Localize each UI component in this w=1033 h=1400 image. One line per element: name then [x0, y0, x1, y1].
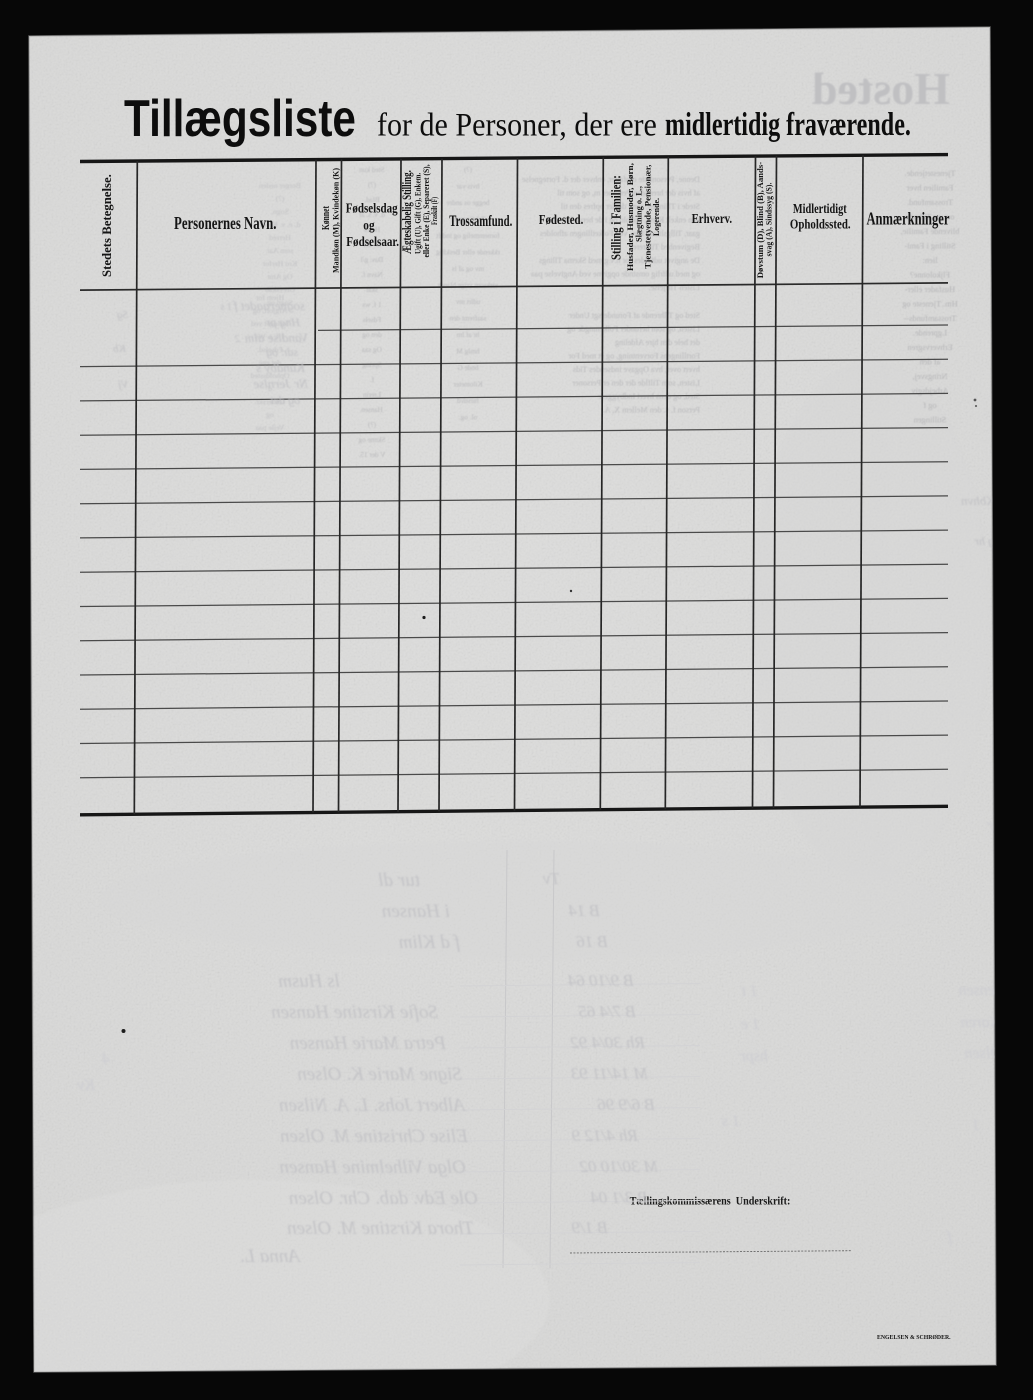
- svg-text:Anmærkninger: Anmærkninger: [867, 210, 950, 230]
- svg-text:Tillægsliste: Tillægsliste: [124, 90, 356, 148]
- svg-text:B 7/4 65: B 7/4 65: [578, 1002, 636, 1021]
- svg-text:Trossamfund.: Trossamfund.: [449, 212, 512, 230]
- svg-text:Dav. g/l: Dav. g/l: [361, 256, 384, 264]
- svg-text:Stilling i Fami-: Stilling i Fami-: [904, 242, 955, 251]
- svg-text:Trossamfund.: Trossamfund.: [907, 198, 953, 207]
- svg-text:Fljkolonne?: Fljkolonne?: [910, 271, 950, 280]
- svg-text:Sg: Sg: [117, 309, 129, 321]
- svg-text:Nringsvej,: Nringsvej,: [912, 372, 947, 381]
- svg-text:Erhverv.: Erhverv.: [692, 211, 733, 226]
- svg-text:M 14/11 93: M 14/11 93: [571, 1064, 649, 1083]
- svg-text:Sknne og: Sknne og: [358, 436, 385, 444]
- svg-text:(?): (?): [367, 181, 376, 189]
- svg-text:Opholdssted.: Opholdssted.: [790, 216, 851, 231]
- svg-text:Erhvervsgren: Erhvervsgren: [907, 343, 953, 352]
- svg-text:Petra Marie Hansen: Petra Marie Hansen: [290, 1033, 447, 1054]
- svg-text:Olga Vilhelmine Hansen: Olga Vilhelmine Hansen: [280, 1157, 466, 1178]
- svg-text:B 6/9 96: B 6/9 96: [597, 1095, 655, 1114]
- svg-text:Tjenestetjende.: Tjenestetjende.: [905, 169, 956, 178]
- svg-text:Familien hver: Familien hver: [906, 184, 953, 193]
- svg-text:ol. og.: ol. og.: [459, 414, 477, 422]
- svg-text:og: og: [266, 410, 274, 419]
- svg-text:Kv: Kv: [76, 1077, 96, 1094]
- svg-text:Sted og Tilhrende af Forunders: Sted og Tilhrende af Forundersgt Under: [569, 311, 700, 320]
- svg-text:og det: og det: [270, 393, 300, 407]
- svg-text:Vejle paa: Vejle paa: [255, 423, 284, 432]
- svg-text:V der 15.: V der 15.: [358, 451, 385, 459]
- svg-text:Nr Jernlse: Nr Jernlse: [253, 376, 309, 391]
- svg-text:Begivenhed Tilhrere?: Begivenhed Tilhrere?: [629, 243, 700, 252]
- svg-text:bnde G: bnde G: [458, 364, 479, 372]
- svg-text:B 3/1 04: B 3/1 04: [590, 1188, 648, 1207]
- svg-text:det hele den hjre Afdeling: det hele den hjre Afdeling: [615, 338, 700, 347]
- svg-text:som Aar: som Aar: [267, 246, 294, 255]
- svg-text:Albert Johs. L. A. Nilsen: Albert Johs. L. A. Nilsen: [279, 1095, 467, 1116]
- svg-text:Fødselsdag: Fødselsdag: [346, 200, 399, 215]
- svg-text:Sofie Kirstine Hansen: Sofie Kirstine Hansen: [271, 1002, 438, 1023]
- svg-text:Ole Edv. dab. Chr. Olsen: Ole Edv. dab. Chr. Olsen: [289, 1188, 478, 1209]
- svg-text:f.: f.: [370, 376, 374, 384]
- svg-text:1 t: 1 t: [741, 983, 758, 1000]
- svg-text:Listen, og som herunder Folkem: Listen, og som herunder Folkemngde og: [567, 325, 700, 334]
- svg-text:B 14: B 14: [568, 901, 600, 920]
- svg-text:Kundby s: Kundby s: [256, 360, 306, 375]
- svg-text:Logerende.: Logerende.: [652, 198, 661, 236]
- svg-text:(?): (?): [275, 194, 284, 203]
- svg-text:tur dl: tur dl: [378, 870, 420, 891]
- svg-text:Fødselsaar.: Fødselsaar.: [346, 234, 399, 249]
- svg-text:4: 4: [102, 1051, 110, 1068]
- svg-text:Midlertidigt: Midlertidigt: [793, 201, 847, 217]
- svg-text:ls Husm: ls Husm: [278, 971, 340, 992]
- svg-text:Elise Christine M. Olsen: Elise Christine M. Olsen: [280, 1126, 469, 1147]
- svg-text:Stedets Betegnelse.: Stedets Betegnelse.: [100, 174, 114, 277]
- svg-text:Og saa: Og saa: [361, 346, 382, 354]
- svg-text:Lgprende.: Lgprende.: [913, 329, 947, 338]
- svg-text:Hng pr: Hng pr: [265, 315, 301, 329]
- svg-text:1 f. ws: 1 f. ws: [362, 301, 382, 309]
- svg-text:2: 2: [235, 334, 240, 345]
- svg-text:Rh 30/4 92: Rh 30/4 92: [570, 1033, 646, 1052]
- svg-text:Husfader eller-: Husfader eller-: [905, 285, 955, 294]
- svg-text:Hansen: Hansen: [361, 406, 383, 414]
- svg-text:1 e: 1 e: [741, 1016, 760, 1033]
- svg-text:fornemmelig og indtft: fornemmelig og indtft: [436, 232, 499, 240]
- svg-text:rkkende eller Beskftig: rkkende eller Beskftig: [436, 249, 500, 257]
- svg-text:Vj: Vj: [118, 379, 128, 391]
- svg-text:B 9/10 64: B 9/10 64: [567, 971, 634, 990]
- svg-text:Og Amt: Og Amt: [267, 272, 293, 281]
- svg-text:1: 1: [972, 1117, 980, 1134]
- svg-text:og: og: [363, 217, 375, 232]
- svg-text:hspr: hspr: [739, 1048, 768, 1065]
- svg-text:f d Klim: f d Klim: [399, 932, 460, 953]
- svg-text:Kilometer: Kilometer: [453, 381, 483, 389]
- svg-text:sogneraadet f: sogneraadet f: [231, 298, 305, 313]
- svg-text:B 1/9: B 1/9: [571, 1218, 608, 1237]
- svg-text:den og: den og: [362, 331, 382, 339]
- svg-text:sdr. og: sdr. og: [266, 345, 298, 359]
- svg-text:Fdsels: Fdsels: [363, 316, 382, 324]
- svg-text:B 16: B 16: [576, 932, 608, 951]
- svg-text:Fortllingens Forventning, og e: Fortllingens Forventning, og et med For: [568, 352, 700, 361]
- svg-text:1 s: 1 s: [221, 302, 233, 313]
- svg-text:Borger neden: Borger neden: [259, 181, 301, 190]
- svg-text:(?): (?): [367, 421, 376, 429]
- svg-text:virksom vrige blandt: virksom vrige blandt: [438, 282, 498, 290]
- svg-text:Stilling i Familien:: Stilling i Familien:: [608, 175, 624, 260]
- svg-text:Mandkøn (M), Kvindekøn (K): Mandkøn (M), Kvindekøn (K): [331, 168, 340, 273]
- svg-text:M 30/10 02: M 30/10 02: [579, 1157, 659, 1176]
- svg-text:for de Personer, der ere: for de Personer, der ere: [377, 106, 657, 143]
- svg-text:Listen, som Tilflde der den er: Listen, som Tilflde der den er Personer: [572, 379, 700, 388]
- svg-text:Personernes Navn.: Personernes Navn.: [174, 214, 276, 234]
- svg-text:lien:: lien:: [923, 256, 938, 265]
- svg-text:svag (A), Sindssyg (S).: svag (A), Sindssyg (S).: [764, 183, 773, 257]
- svg-text:Vandlse alm: Vandlse alm: [245, 330, 308, 345]
- svg-text:Kbhvn: Kbhvn: [961, 493, 996, 508]
- svg-text:Thora Kirstine M. Olsen: Thora Kirstine M. Olsen: [287, 1218, 474, 1239]
- svg-text:midlertidig fraværende.: midlertidig fraværende.: [665, 106, 911, 143]
- svg-text:saafremt den: saafremt den: [449, 315, 486, 323]
- svg-text:Kro Herfor: Kro Herfor: [262, 259, 297, 268]
- svg-text:hmlg M: hmlg M: [456, 348, 480, 356]
- svg-text:(?): (?): [463, 166, 472, 174]
- svg-text:og med udfrlig omstnde opgivne: og med udfrlig omstnde opgivne ved Angiv…: [531, 270, 700, 279]
- svg-text:i Hansen: i Hansen: [382, 901, 450, 922]
- svg-text:Stillingen: Stillingen: [913, 416, 946, 425]
- svg-text:Person f. s. den Mellem X, A.: Person f. s. den Mellem X, A.: [603, 406, 700, 415]
- svg-text:hvis var: hvis var: [456, 183, 480, 191]
- svg-text:Sted kun: Sted kun: [359, 166, 385, 174]
- svg-text:Hm. Tjeneste og: Hm. Tjeneste og: [901, 300, 957, 309]
- svg-text:ENGELSEN & SCHRØDER.: ENGELSEN & SCHRØDER.: [877, 1335, 951, 1341]
- svg-text:Kb: Kb: [113, 343, 127, 355]
- svg-text:begge os andre: begge os andre: [446, 199, 489, 207]
- svg-text:Anna L.: Anna L.: [240, 1246, 302, 1267]
- svg-text:Fraskilt (F): Fraskilt (F): [430, 196, 439, 225]
- svg-text:Rh 4/12 9: Rh 4/12 9: [571, 1126, 639, 1145]
- svg-text:Trossamfunds--: Trossamfunds--: [903, 314, 956, 323]
- svg-text:1 s: 1 s: [722, 1113, 740, 1130]
- svg-text:hvert over, hva Opgave indsend: hvert over, hva Opgave indsendes Tids: [573, 365, 700, 374]
- svg-text:hr af lm: hr af lm: [456, 331, 479, 339]
- svg-text:Navn f.: Navn f.: [361, 271, 383, 279]
- svg-text:Fødested.: Fødested.: [539, 212, 584, 227]
- svg-text:Spring: Spring: [362, 361, 382, 369]
- svg-text:mv og af ls: mv og af ls: [452, 265, 484, 273]
- svg-text:Herred: Herred: [269, 233, 291, 242]
- svg-text:Signe Marie K. Olsen: Signe Marie K. Olsen: [297, 1064, 462, 1085]
- svg-text:og f: og f: [923, 401, 936, 410]
- svg-text:udlrt mv: udlrt mv: [455, 298, 480, 306]
- svg-text:Tv: Tv: [543, 869, 560, 888]
